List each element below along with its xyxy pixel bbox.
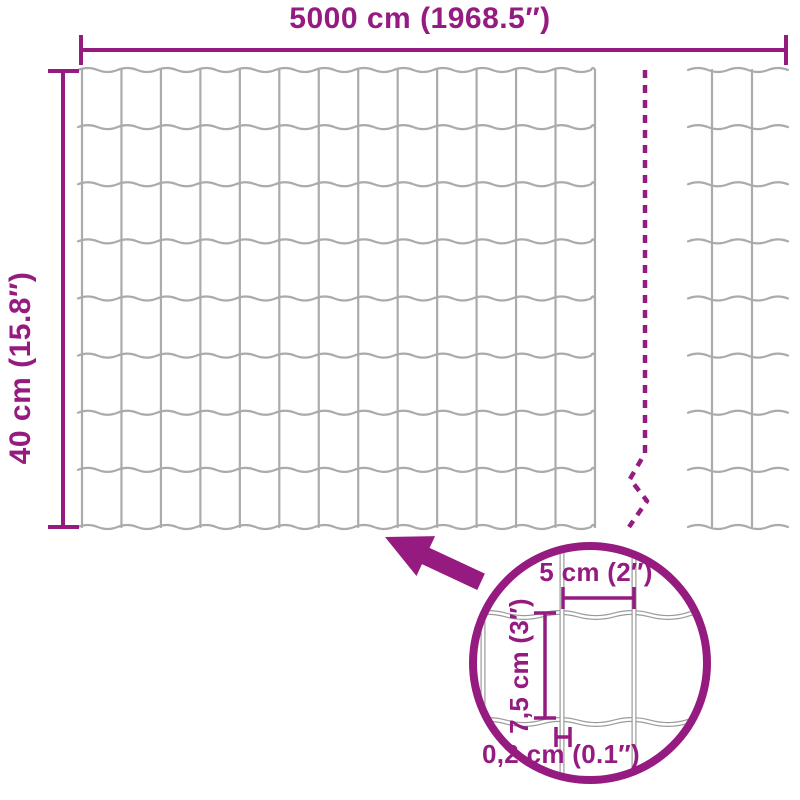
up-left-arrow-icon: [376, 517, 491, 602]
cell-height-label: 7,5 cm (3″): [504, 598, 534, 734]
fence-roll-dimension-diagram: 5000 cm (1968.5″) 40 cm (15.8″) 5 cm (2″…: [0, 0, 800, 800]
break-line: [629, 70, 647, 527]
cell-width-label: 5 cm (2″): [539, 557, 652, 587]
mesh-main: [78, 68, 595, 529]
height-dimension: 40 cm (15.8″): [4, 71, 79, 527]
mesh-right: [688, 68, 788, 529]
magnifier: 5 cm (2″) 7,5 cm (3″) 0,2 cm (0.1″): [470, 545, 712, 782]
roll-length-label: 5000 cm (1968.5″): [289, 2, 550, 35]
roll-height-label: 40 cm (15.8″): [4, 272, 37, 465]
width-dimension: 5000 cm (1968.5″): [81, 2, 786, 65]
